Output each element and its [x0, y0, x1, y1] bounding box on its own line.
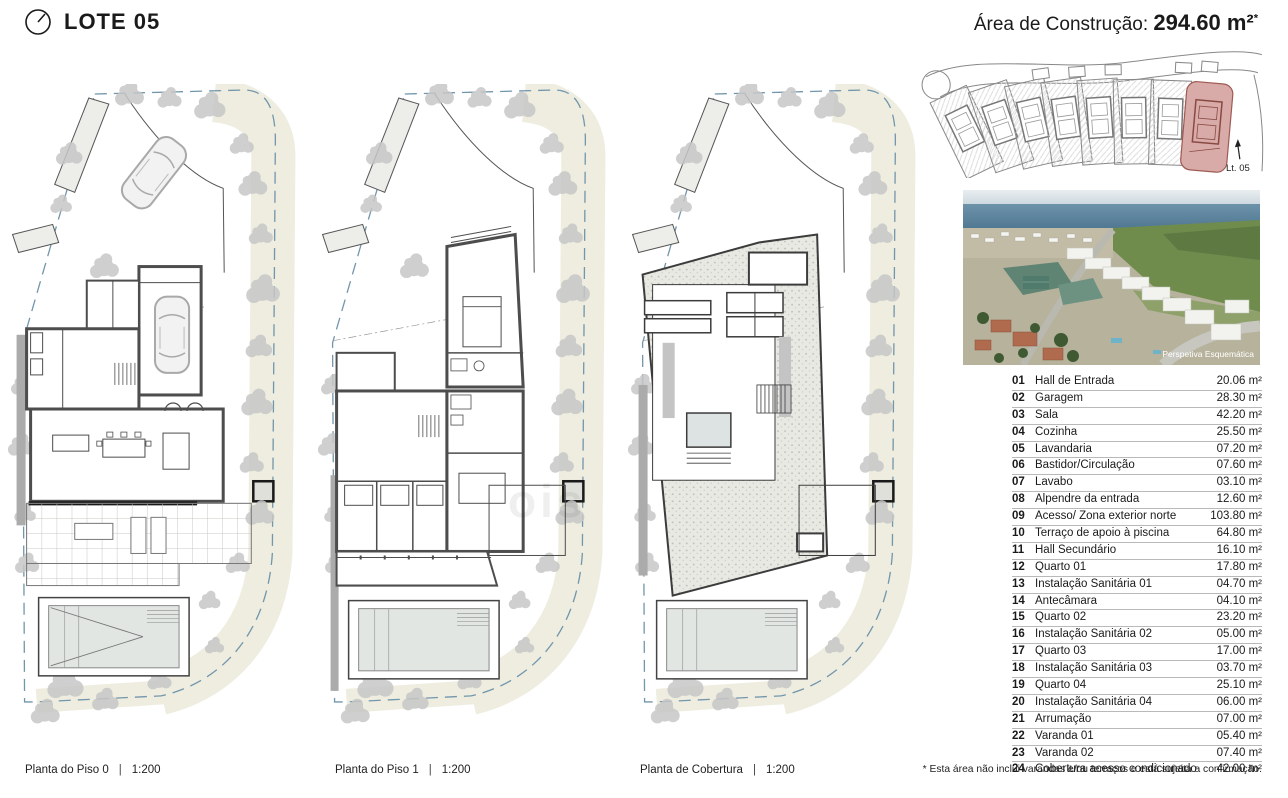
room-name: Instalação Sanitária 03	[1035, 662, 1217, 675]
table-row: 07 Lavabo 03.10 m²	[1012, 475, 1262, 492]
room-area: 07.20 m²	[1217, 443, 1262, 456]
table-row: 19 Quarto 04 25.10 m²	[1012, 678, 1262, 695]
table-row: 10 Terraço de apoio à piscina 64.80 m²	[1012, 526, 1262, 543]
room-number: 12	[1012, 561, 1035, 574]
table-row: 23 Varanda 02 07.40 m²	[1012, 746, 1262, 763]
room-name: Quarto 02	[1035, 611, 1217, 624]
room-name: Varanda 01	[1035, 730, 1217, 743]
room-area: 03.70 m²	[1217, 662, 1262, 675]
room-number: 14	[1012, 595, 1035, 608]
room-name: Quarto 04	[1035, 679, 1217, 692]
room-name: Alpendre da entrada	[1035, 493, 1217, 506]
room-number: 15	[1012, 611, 1035, 624]
page-title: LOTE 05	[64, 9, 160, 35]
room-number: 11	[1012, 544, 1035, 557]
table-row: 02 Garagem 28.30 m²	[1012, 391, 1262, 408]
room-area: 20.06 m²	[1217, 375, 1262, 388]
construction-area-header: Área de Construção: 294.60 m²*	[974, 10, 1258, 36]
table-row: 08 Alpendre da entrada 12.60 m²	[1012, 492, 1262, 509]
room-number: 18	[1012, 662, 1035, 675]
room-number: 03	[1012, 409, 1035, 422]
room-area: 05.40 m²	[1217, 730, 1262, 743]
table-row: 22 Varanda 01 05.40 m²	[1012, 729, 1262, 746]
site-plan-highlight-lot	[1180, 81, 1234, 173]
table-row: 11 Hall Secundário 16.10 m²	[1012, 543, 1262, 560]
room-number: 06	[1012, 459, 1035, 472]
table-row: 14 Antecâmara 04.10 m²	[1012, 594, 1262, 611]
plan-caption-piso0: Planta do Piso 0|1:200	[25, 764, 161, 776]
room-number: 19	[1012, 679, 1035, 692]
room-area: 25.10 m²	[1217, 679, 1262, 692]
table-row: 09 Acesso/ Zona exterior norte 103.80 m²	[1012, 509, 1262, 526]
room-area: 28.30 m²	[1217, 392, 1262, 405]
room-name: Acesso/ Zona exterior norte	[1035, 510, 1210, 523]
table-row: 13 Instalação Sanitária 01 04.70 m²	[1012, 577, 1262, 594]
table-row: 04 Cozinha 25.50 m²	[1012, 425, 1262, 442]
room-area: 17.00 m²	[1217, 645, 1262, 658]
room-name: Quarto 01	[1035, 561, 1217, 574]
room-name: Lavabo	[1035, 476, 1217, 489]
table-row: 03 Sala 42.20 m²	[1012, 408, 1262, 425]
table-row: 15 Quarto 02 23.20 m²	[1012, 610, 1262, 627]
room-number: 04	[1012, 426, 1035, 439]
room-name: Garagem	[1035, 392, 1217, 405]
room-area: 07.60 m²	[1217, 459, 1262, 472]
room-name: Cozinha	[1035, 426, 1217, 439]
table-row: 20 Instalação Sanitária 04 06.00 m²	[1012, 695, 1262, 712]
area-label: Área de Construção:	[974, 14, 1148, 35]
room-number: 17	[1012, 645, 1035, 658]
aerial-photo	[963, 190, 1260, 365]
floor-plan-piso1	[318, 84, 620, 726]
room-name: Instalação Sanitária 01	[1035, 578, 1217, 591]
room-area: 05.00 m²	[1217, 628, 1262, 641]
room-name: Terraço de apoio à piscina	[1035, 527, 1217, 540]
footnote: * Esta área não inclui varandas e/ou ter…	[923, 764, 1262, 775]
areas-table: 01 Hall de Entrada 20.06 m² 02 Garagem 2…	[1012, 374, 1262, 778]
room-number: 01	[1012, 375, 1035, 388]
table-row: 21 Arrumação 07.00 m²	[1012, 712, 1262, 729]
room-number: 05	[1012, 443, 1035, 456]
room-number: 21	[1012, 713, 1035, 726]
room-name: Instalação Sanitária 02	[1035, 628, 1217, 641]
area-value: 294.60 m²*	[1153, 10, 1258, 35]
room-name: Hall Secundário	[1035, 544, 1217, 557]
site-plan	[912, 46, 1264, 178]
room-number: 13	[1012, 578, 1035, 591]
room-area: 64.80 m²	[1217, 527, 1262, 540]
room-area: 07.40 m²	[1217, 747, 1262, 760]
plan-caption-piso1: Planta do Piso 1|1:200	[335, 764, 471, 776]
room-name: Antecâmara	[1035, 595, 1217, 608]
plan-caption-cobertura: Planta de Cobertura|1:200	[640, 764, 795, 776]
room-area: 04.10 m²	[1217, 595, 1262, 608]
header-left: LOTE 05	[24, 8, 160, 36]
room-area: 103.80 m²	[1210, 510, 1262, 523]
room-name: Quarto 03	[1035, 645, 1217, 658]
room-area: 07.00 m²	[1217, 713, 1262, 726]
floor-plan-piso0	[8, 84, 310, 726]
room-number: 09	[1012, 510, 1035, 523]
room-area: 16.10 m²	[1217, 544, 1262, 557]
room-number: 23	[1012, 747, 1035, 760]
room-name: Instalação Sanitária 04	[1035, 696, 1217, 709]
room-number: 20	[1012, 696, 1035, 709]
table-row: 01 Hall de Entrada 20.06 m²	[1012, 374, 1262, 391]
room-number: 08	[1012, 493, 1035, 506]
table-row: 17 Quarto 03 17.00 m²	[1012, 644, 1262, 661]
room-area: 06.00 m²	[1217, 696, 1262, 709]
table-row: 12 Quarto 01 17.80 m²	[1012, 560, 1262, 577]
room-number: 07	[1012, 476, 1035, 489]
room-number: 10	[1012, 527, 1035, 540]
room-area: 25.50 m²	[1217, 426, 1262, 439]
room-number: 16	[1012, 628, 1035, 641]
table-row: 18 Instalação Sanitária 03 03.70 m²	[1012, 661, 1262, 678]
room-name: Bastidor/Circulação	[1035, 459, 1217, 472]
room-name: Sala	[1035, 409, 1217, 422]
room-area: 42.20 m²	[1217, 409, 1262, 422]
room-area: 23.20 m²	[1217, 611, 1262, 624]
table-row: 16 Instalação Sanitária 02 05.00 m²	[1012, 627, 1262, 644]
table-row: 05 Lavandaria 07.20 m²	[1012, 442, 1262, 459]
room-area: 04.70 m²	[1217, 578, 1262, 591]
room-number: 02	[1012, 392, 1035, 405]
room-name: Hall de Entrada	[1035, 375, 1217, 388]
room-area: 03.10 m²	[1217, 476, 1262, 489]
page: { "header": { "lot_title": "LOTE 05", "a…	[0, 0, 1288, 798]
room-number: 22	[1012, 730, 1035, 743]
table-row: 06 Bastidor/Circulação 07.60 m²	[1012, 458, 1262, 475]
room-name: Lavandaria	[1035, 443, 1217, 456]
room-area: 17.80 m²	[1217, 561, 1262, 574]
floor-plan-cobertura	[628, 84, 930, 726]
room-area: 12.60 m²	[1217, 493, 1262, 506]
room-name: Varanda 02	[1035, 747, 1217, 760]
site-plan-highlight-label: Lt. 05	[1226, 163, 1250, 174]
north-icon	[24, 8, 52, 36]
room-name: Arrumação	[1035, 713, 1217, 726]
